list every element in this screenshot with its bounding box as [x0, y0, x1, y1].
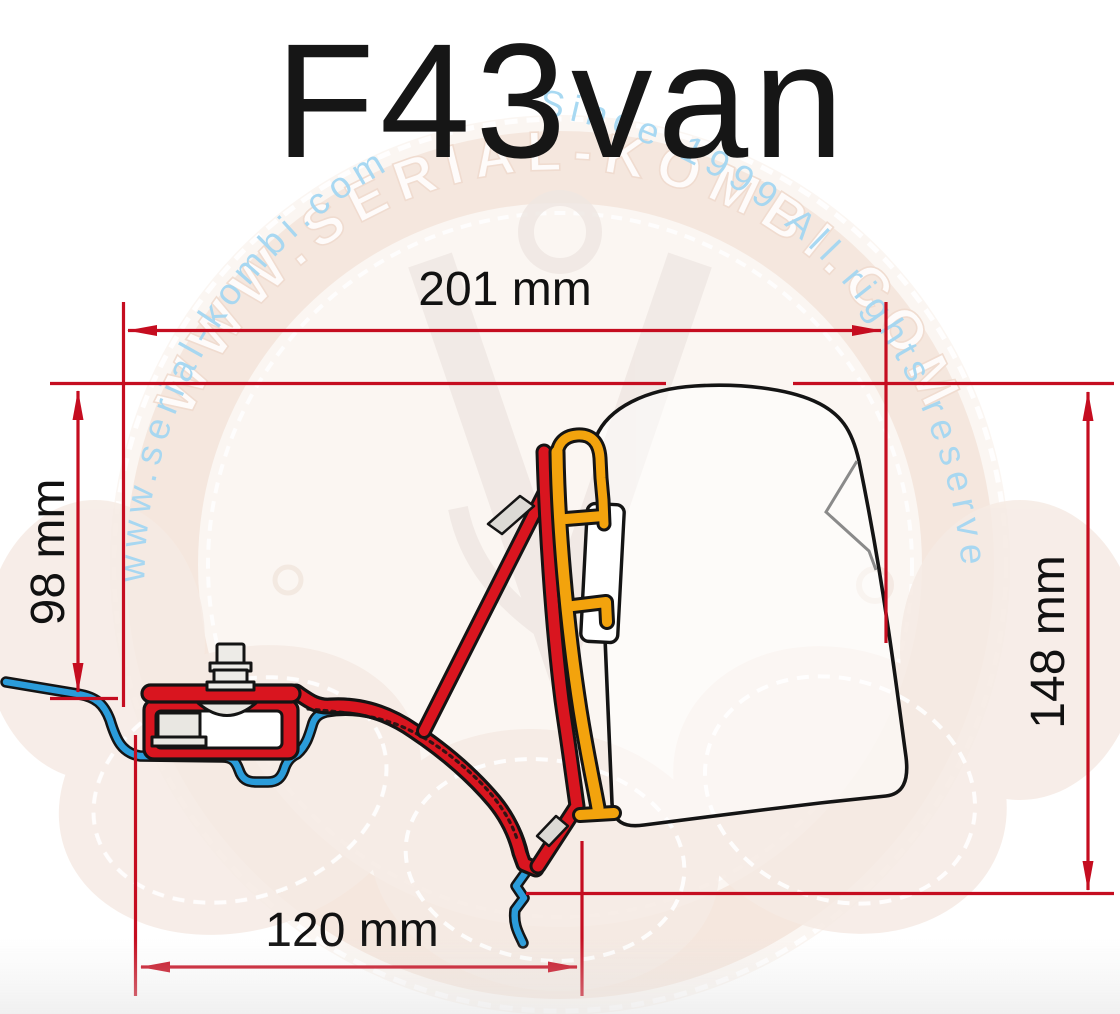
diagram-canvas: WWW.SERIAL-KOMBI.COM www.serial-kombi.co…	[0, 0, 1120, 1014]
awning-case	[580, 385, 906, 825]
bolt-washer	[207, 682, 254, 690]
dim-label-201: 201 mm	[418, 263, 591, 316]
dim-label-98: 98 mm	[22, 479, 75, 626]
bottom-fade	[0, 938, 1120, 1014]
clamp-nut-block	[158, 713, 200, 739]
dim-label-148: 148 mm	[1022, 555, 1075, 728]
diagram-title: F43van	[275, 9, 849, 192]
clamp-nut-base	[152, 737, 206, 746]
